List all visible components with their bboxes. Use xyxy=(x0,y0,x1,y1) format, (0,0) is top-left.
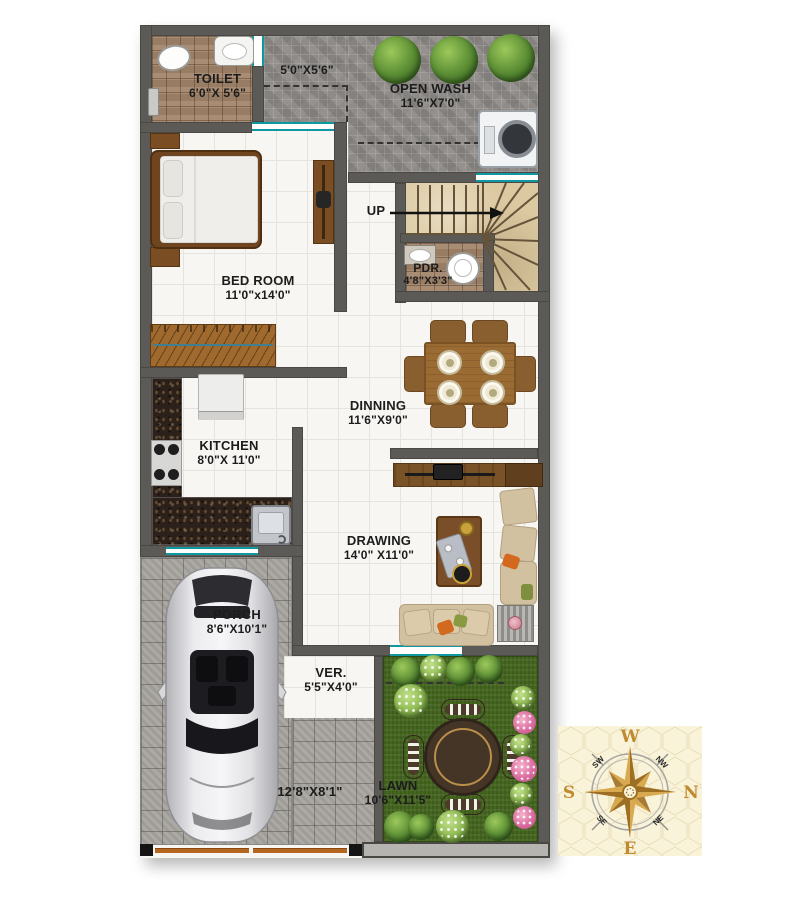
drawing-name: DRAWING xyxy=(316,534,442,549)
tv-icon xyxy=(433,464,463,480)
compass-rose: W E S N SW NW SE NE xyxy=(558,726,702,856)
washer-panel xyxy=(484,126,495,154)
rug-decor-icon xyxy=(508,616,522,630)
dashed-line-passage xyxy=(264,85,348,87)
bush-icon xyxy=(391,657,421,687)
open-wash-dims: 11'6"X7'0" xyxy=(368,97,493,110)
decor-bowl-icon xyxy=(452,564,472,584)
wall-top xyxy=(140,25,550,36)
blanket-fold xyxy=(194,156,196,243)
throw-pillow-green xyxy=(453,614,468,628)
kitchen-dims: 8'0"X 11'0" xyxy=(178,454,280,467)
open-wash-name: OPEN WASH xyxy=(368,82,493,97)
bush-icon xyxy=(475,655,503,683)
room-label-toilet: TOILET 6'0"X 5'6" xyxy=(170,72,265,100)
pdr-name: PDR. xyxy=(394,262,462,275)
gate-post-left xyxy=(140,844,153,856)
kitchen-name: KITCHEN xyxy=(178,439,280,454)
room-label-dining: DINNING 11'6"X9'0" xyxy=(327,399,429,427)
plot-front-dims-label: 12'8"X8'1" xyxy=(255,785,365,800)
gate-bar-left xyxy=(155,848,249,853)
bush-icon xyxy=(484,812,513,841)
lawn-chair xyxy=(403,735,424,779)
pink-flower-icon xyxy=(513,806,536,829)
room-label-open-wash: OPEN WASH 11'6"X7'0" xyxy=(368,82,493,110)
sofa-bottom xyxy=(399,604,494,646)
window-openwash xyxy=(476,173,538,182)
compass-label-w: W xyxy=(619,727,640,747)
gold-plate-icon xyxy=(459,521,474,536)
room-label-verandah: VER. 5'5"X4'0" xyxy=(283,666,379,694)
bedroom-dims: 11'0"x14'0" xyxy=(212,289,304,302)
plate-icon xyxy=(480,380,505,405)
wall-right xyxy=(538,25,550,858)
window-drawing xyxy=(390,645,462,656)
room-label-drawing: DRAWING 14'0" X11'0" xyxy=(316,534,442,562)
dashed-line-passage-v xyxy=(346,85,348,122)
flower-bush-icon xyxy=(511,686,535,710)
toilet-basin-icon xyxy=(214,36,254,66)
fridge-base xyxy=(199,411,243,420)
wall-drawing-top xyxy=(390,448,538,459)
dining-chair xyxy=(472,320,508,344)
room-label-porch: PORCH 8'6"X10'1" xyxy=(187,608,287,636)
bush-icon xyxy=(446,657,475,686)
burner xyxy=(154,469,165,480)
bush-icon xyxy=(487,34,535,82)
flower-bush-icon xyxy=(394,684,428,718)
floor-passage xyxy=(264,36,348,122)
drawing-dims: 14'0" X11'0" xyxy=(316,549,442,562)
sofa-cushion xyxy=(402,608,432,637)
compass-label-e: E xyxy=(624,839,637,856)
room-label-passage: 5'0"X5'6" xyxy=(262,64,352,77)
window-kitchen xyxy=(166,547,258,555)
flower-bush-icon xyxy=(420,655,447,682)
pillow xyxy=(163,202,183,239)
plot-front-dims: 12'8"X8'1" xyxy=(255,785,365,800)
room-label-kitchen: KITCHEN 8'0"X 11'0" xyxy=(178,439,280,467)
flower-bush-icon xyxy=(510,734,532,756)
nightstand xyxy=(150,247,180,267)
plate-icon xyxy=(437,380,462,405)
bush-icon xyxy=(408,814,434,840)
pink-flower-icon xyxy=(513,711,536,734)
lawn-table-ring xyxy=(434,728,492,786)
plate-icon xyxy=(480,350,505,375)
verandah-name: VER. xyxy=(283,666,379,681)
sink-basin xyxy=(258,512,284,534)
bed xyxy=(150,150,262,249)
bush-icon xyxy=(430,36,478,84)
compass-label-n: N xyxy=(683,783,699,803)
basin-bowl xyxy=(222,43,247,60)
dining-chair xyxy=(430,404,466,428)
cup-icon xyxy=(443,543,453,553)
tv-console-cabinet xyxy=(505,463,543,487)
room-label-pdr: PDR. 4'8"X3'3" xyxy=(394,262,462,288)
dresser xyxy=(150,324,276,367)
burner xyxy=(168,469,179,480)
desk-chair xyxy=(316,191,331,208)
car xyxy=(156,562,288,848)
dresser-rail xyxy=(153,344,273,346)
wall-kitchen-right xyxy=(292,427,303,656)
porch-dims: 8'6"X10'1" xyxy=(187,623,287,636)
gate-post-right xyxy=(349,844,362,856)
dining-dims: 11'6"X9'0" xyxy=(327,414,429,427)
sofa-right-cushion xyxy=(499,487,538,526)
passage-dims: 5'0"X5'6" xyxy=(262,64,352,77)
sink-faucet xyxy=(277,535,286,544)
nightstand xyxy=(150,133,180,149)
room-label-bedroom: BED ROOM 11'0"x14'0" xyxy=(212,274,304,302)
porch-name: PORCH xyxy=(187,608,287,623)
bedroom-name: BED ROOM xyxy=(212,274,304,289)
dining-name: DINNING xyxy=(327,399,429,414)
lawn-chair xyxy=(441,699,485,720)
wall-stairs-bottom xyxy=(395,291,550,302)
kitchen-sink-icon xyxy=(251,505,291,545)
fridge-icon xyxy=(198,374,244,420)
compass-label-s: S xyxy=(563,783,575,803)
toilet-dims: 6'0"X 5'6" xyxy=(170,87,265,100)
verandah-dims: 5'5"X4'0" xyxy=(283,681,379,694)
toilet-name: TOILET xyxy=(170,72,265,87)
plate-icon xyxy=(437,350,462,375)
floor-plan-canvas: TOILET 6'0"X 5'6" 5'0"X5'6" OPEN WASH 11… xyxy=(0,0,800,900)
dashed-line-openwash xyxy=(358,142,480,144)
pillow xyxy=(163,160,183,197)
up-arrow-icon xyxy=(388,205,506,221)
window-passage xyxy=(252,122,334,131)
bush-icon xyxy=(373,36,421,84)
gate-bar-right xyxy=(253,848,347,853)
flower-bush-icon xyxy=(436,810,469,843)
pdr-dims: 4'8"X3'3" xyxy=(394,275,462,287)
dining-chair xyxy=(430,320,466,344)
wall-bedroom-right xyxy=(334,122,347,312)
pink-flower-icon xyxy=(511,756,537,782)
washer-drum xyxy=(498,120,536,158)
throw-pillow-green xyxy=(521,584,533,600)
washing-machine-icon xyxy=(478,110,538,168)
shower-mixer-icon xyxy=(148,88,159,116)
dining-chair xyxy=(472,404,508,428)
wall-toilet-bottom xyxy=(140,122,252,133)
burner xyxy=(154,444,165,455)
wall-lawn-bottom xyxy=(362,842,550,858)
flower-bush-icon xyxy=(510,783,533,806)
